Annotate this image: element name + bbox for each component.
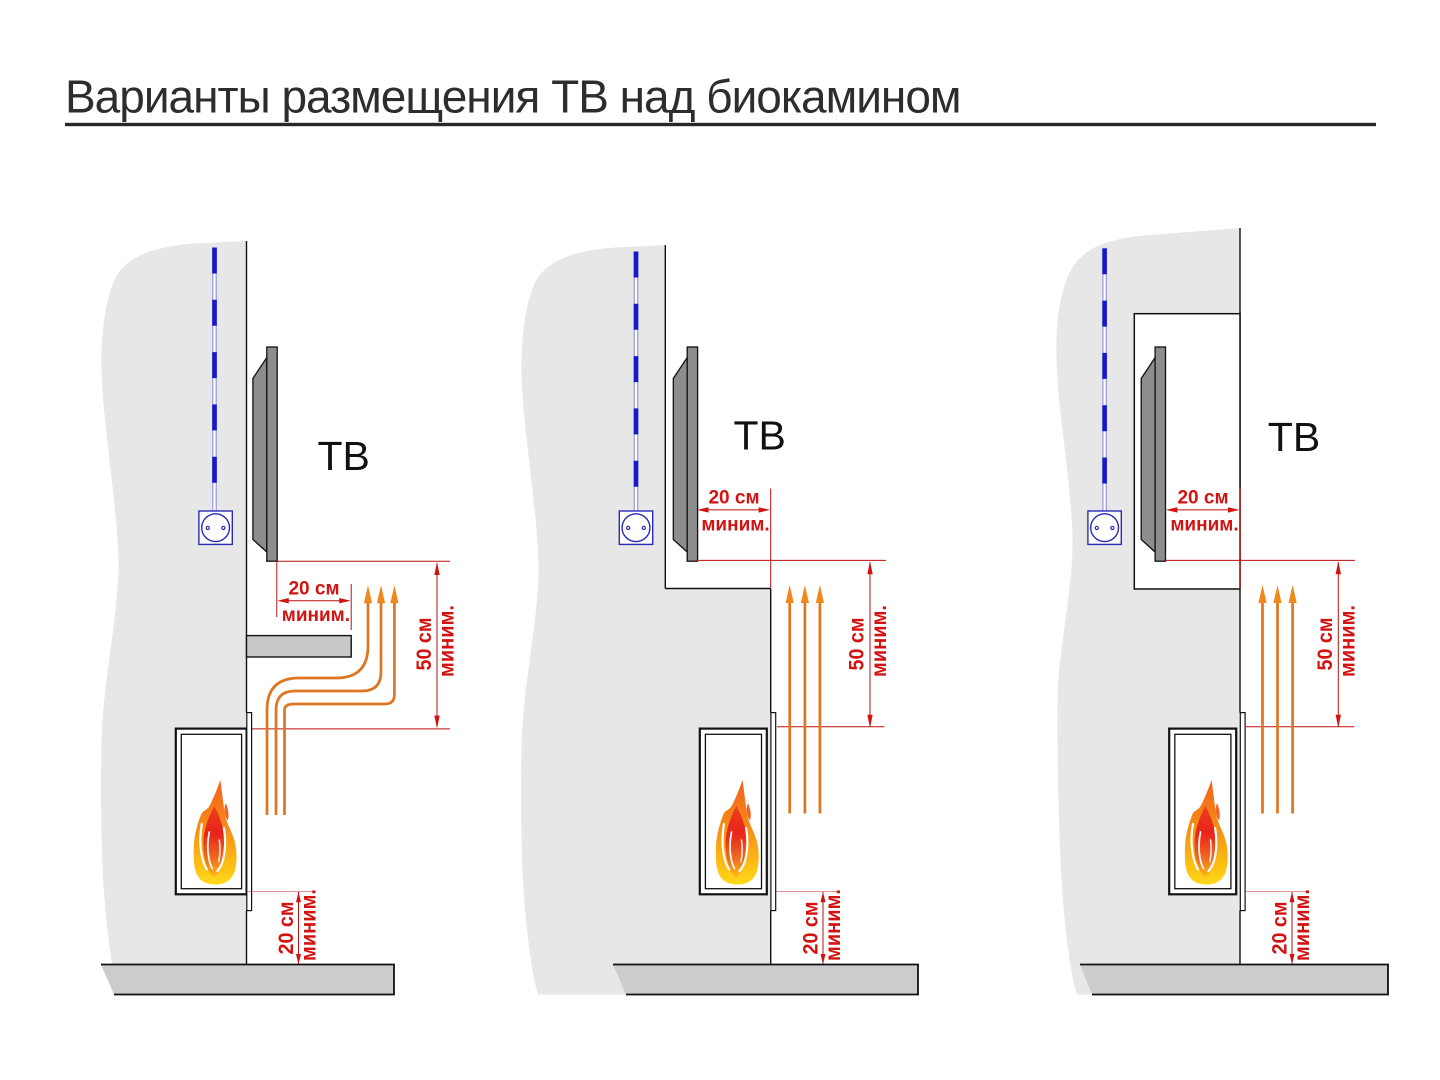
svg-text:20 см: 20 см bbox=[1177, 487, 1228, 508]
svg-text:Варианты размещения ТВ над био: Варианты размещения ТВ над биокамином bbox=[65, 71, 961, 123]
svg-text:20 см: 20 см bbox=[708, 487, 759, 508]
svg-text:50 смминим.: 50 смминим. bbox=[1314, 605, 1360, 677]
svg-text:50 смминим.: 50 смминим. bbox=[846, 605, 892, 677]
svg-text:миним.: миним. bbox=[282, 605, 350, 626]
svg-text:ТВ: ТВ bbox=[1268, 414, 1320, 460]
svg-text:20 смминим.: 20 смминим. bbox=[1269, 889, 1315, 961]
svg-text:миним.: миним. bbox=[1170, 514, 1238, 535]
svg-text:20 см: 20 см bbox=[288, 578, 339, 599]
svg-text:миним.: миним. bbox=[701, 514, 769, 535]
svg-text:20 смминим.: 20 смминим. bbox=[799, 889, 845, 961]
svg-text:ТВ: ТВ bbox=[734, 413, 786, 459]
svg-text:ТВ: ТВ bbox=[318, 433, 370, 479]
svg-text:20 смминим.: 20 смминим. bbox=[275, 889, 321, 961]
svg-text:50 смминим.: 50 смминим. bbox=[413, 605, 459, 677]
